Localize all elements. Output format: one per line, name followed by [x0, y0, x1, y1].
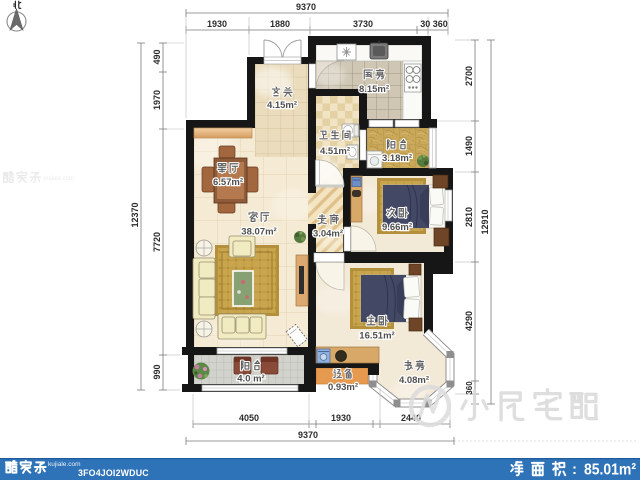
- svg-text:4290: 4290: [464, 311, 474, 331]
- svg-text:4050: 4050: [239, 413, 259, 423]
- svg-text:8.15m²: 8.15m²: [359, 84, 389, 95]
- svg-text:3FO4JOI2WDUC: 3FO4JOI2WDUC: [78, 468, 149, 478]
- svg-text:3730: 3730: [353, 19, 373, 29]
- svg-text:30 360: 30 360: [420, 19, 448, 29]
- svg-text:12370: 12370: [130, 202, 140, 227]
- svg-text:9370: 9370: [298, 430, 318, 440]
- svg-text:kujiale.com: kujiale.com: [48, 461, 81, 468]
- svg-text:12910: 12910: [480, 209, 490, 234]
- svg-text:9370: 9370: [296, 2, 316, 12]
- svg-text:0.93m²: 0.93m²: [328, 382, 358, 393]
- svg-text:2810: 2810: [464, 207, 474, 227]
- svg-text:2700: 2700: [464, 66, 474, 86]
- svg-text:3.18m²: 3.18m²: [382, 153, 412, 164]
- svg-text:3.04m²: 3.04m²: [313, 229, 343, 240]
- svg-text:1970: 1970: [152, 90, 162, 110]
- svg-text:kujiale.com: kujiale.com: [44, 176, 74, 182]
- svg-text:4.0 m²: 4.0 m²: [237, 374, 264, 385]
- svg-text:1930: 1930: [207, 19, 227, 29]
- svg-text:4.08m²: 4.08m²: [399, 375, 429, 386]
- svg-text:4.51m²: 4.51m²: [320, 146, 350, 157]
- svg-text:85.01m²: 85.01m²: [584, 462, 636, 479]
- svg-text:360: 360: [465, 381, 474, 395]
- svg-text:6.57m²: 6.57m²: [213, 177, 243, 188]
- svg-text:9.66m²: 9.66m²: [382, 222, 412, 233]
- svg-text::: :: [572, 461, 577, 478]
- svg-text:4.15m²: 4.15m²: [267, 100, 297, 111]
- svg-text:1880: 1880: [270, 19, 290, 29]
- svg-text:490: 490: [152, 49, 162, 64]
- svg-text:7720: 7720: [152, 232, 162, 252]
- svg-text:1490: 1490: [464, 136, 474, 156]
- svg-text:1930: 1930: [331, 413, 351, 423]
- svg-text:990: 990: [152, 364, 162, 379]
- svg-text:38.07m²: 38.07m²: [241, 227, 276, 238]
- svg-text:16.51m²: 16.51m²: [359, 331, 394, 342]
